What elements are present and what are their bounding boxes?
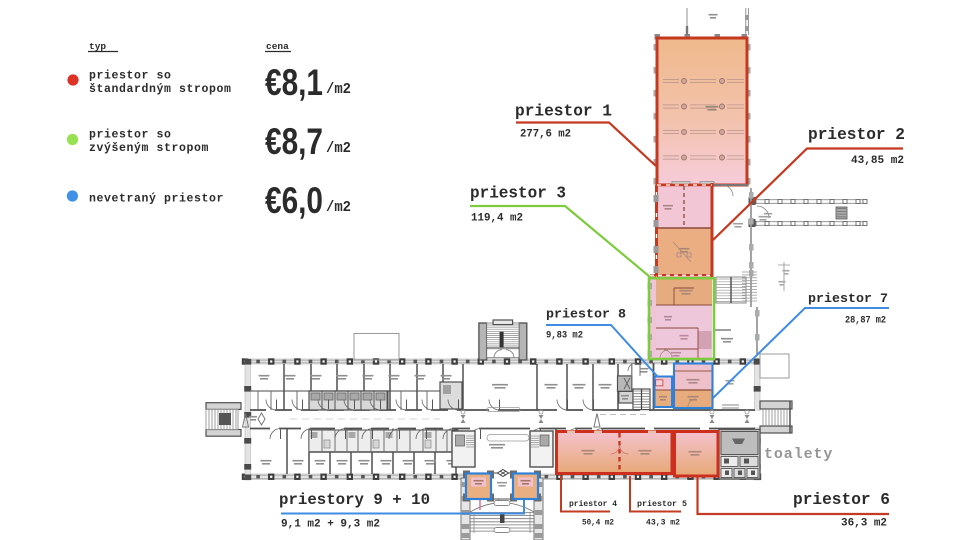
svg-text:typ: typ [89,41,106,52]
svg-text:priestor so: priestor so [89,70,172,83]
svg-text:priestor 3: priestor 3 [470,184,566,203]
svg-text:€8,7: €8,7 [265,121,323,162]
svg-text:9,1 m2 + 9,3 m2: 9,1 m2 + 9,3 m2 [281,519,380,531]
svg-text:priestor 6: priestor 6 [793,490,890,509]
svg-text:priestor 1: priestor 1 [515,102,612,121]
svg-text:/m2: /m2 [326,200,351,216]
svg-text:štandardným stropom: štandardným stropom [89,83,232,96]
svg-text:43,3 m2: 43,3 m2 [646,519,680,528]
svg-text:toalety: toalety [764,446,833,463]
svg-text:cena: cena [266,41,289,52]
svg-text:zvýšeným stropom: zvýšeným stropom [89,142,209,155]
svg-text:/m2: /m2 [326,141,351,157]
svg-text:priestor 4: priestor 4 [569,499,617,509]
svg-text:priestor 8: priestor 8 [546,307,626,322]
svg-text:/m2: /m2 [326,82,351,98]
svg-text:priestor 2: priestor 2 [808,125,905,144]
svg-text:nevetraný priestor: nevetraný priestor [89,193,224,206]
svg-text:€8,1: €8,1 [265,62,323,103]
svg-text:priestor 5: priestor 5 [637,499,687,509]
svg-text:36,3 m2: 36,3 m2 [841,518,887,530]
svg-text:28,87 m2: 28,87 m2 [845,316,886,327]
svg-text:9,83 m2: 9,83 m2 [546,331,583,342]
svg-text:priestory 9 + 10: priestory 9 + 10 [279,491,430,509]
svg-text:277,6 m2: 277,6 m2 [520,129,571,141]
svg-text:50,4 m2: 50,4 m2 [582,519,614,528]
svg-text:priestor 7: priestor 7 [808,291,888,306]
svg-text:119,4 m2: 119,4 m2 [471,213,523,225]
svg-text:priestor so: priestor so [89,129,172,142]
svg-text:43,85 m2: 43,85 m2 [851,155,904,167]
svg-text:€6,0: €6,0 [265,180,323,221]
